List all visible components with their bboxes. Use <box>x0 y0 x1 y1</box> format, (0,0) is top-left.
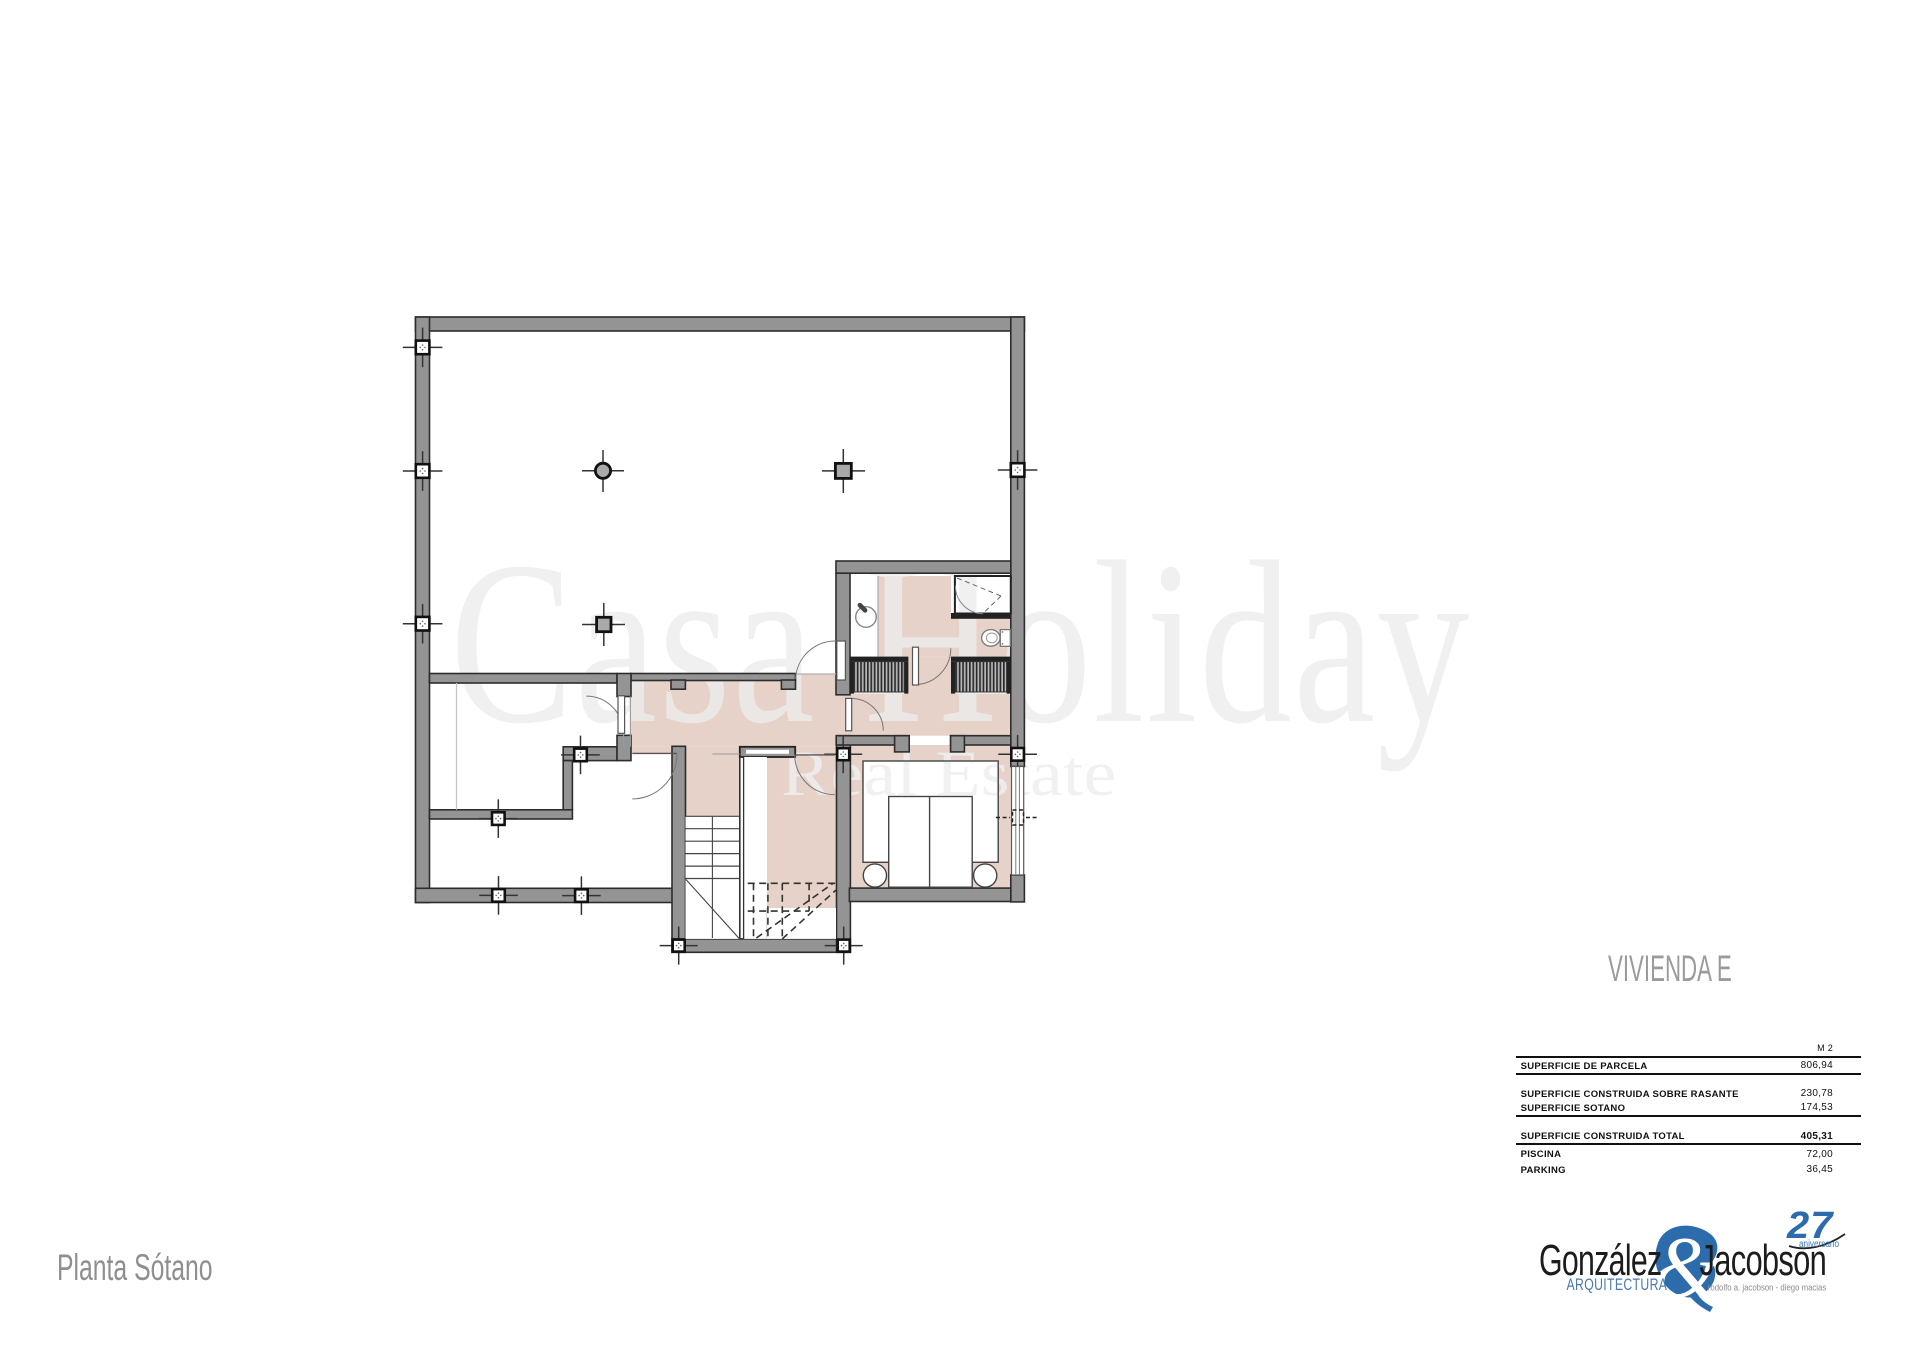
svg-text:aniversario: aniversario <box>1799 1237 1839 1249</box>
svg-text:rodolfo a. jacobson - diego ma: rodolfo a. jacobson - diego macias <box>1708 1282 1827 1293</box>
svg-text:ARQUITECTURA: ARQUITECTURA <box>1567 1276 1668 1294</box>
